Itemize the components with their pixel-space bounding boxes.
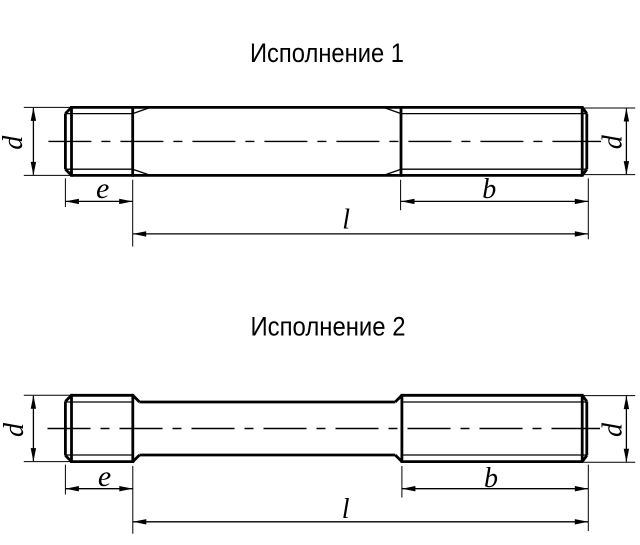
svg-text:b: b (482, 174, 496, 205)
svg-text:l: l (342, 205, 350, 236)
svg-text:b: b (484, 463, 498, 494)
svg-text:d: d (598, 422, 629, 437)
svg-text:e: e (98, 460, 111, 493)
svg-text:l: l (342, 494, 350, 525)
svg-text:Исполнение 2: Исполнение 2 (251, 312, 406, 342)
svg-text:Исполнение 1: Исполнение 1 (250, 38, 404, 68)
svg-text:d: d (0, 135, 29, 150)
svg-text:e: e (96, 172, 109, 205)
svg-text:d: d (598, 134, 629, 149)
svg-text:d: d (0, 422, 30, 437)
